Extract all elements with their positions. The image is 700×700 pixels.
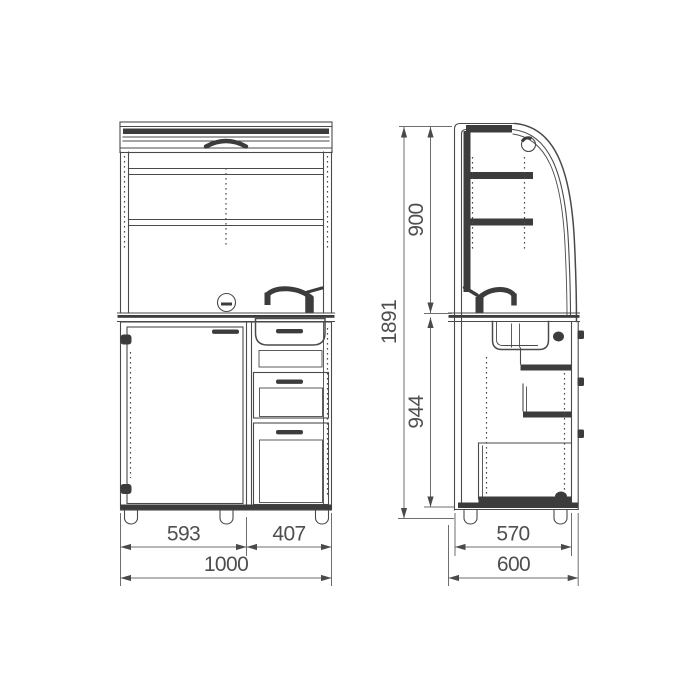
drawer-bottom-handle: [276, 430, 303, 434]
plinth-rail-side: [458, 503, 578, 509]
sink-drawer-inner-panel: [259, 351, 322, 368]
door-hinge-top: [121, 335, 132, 345]
drawer-bottom-front: [254, 423, 329, 505]
cabinet-door: [127, 327, 243, 504]
fitting-clip-top: [553, 332, 564, 342]
drawer-middle-handle: [276, 380, 303, 384]
dim-label-lower-height: 944: [405, 394, 428, 428]
dim-label-upper-height: 900: [405, 203, 428, 236]
hutch-shelves: [129, 168, 324, 247]
faucet-front: [268, 288, 323, 313]
dim-side-total-height: 1891: [378, 127, 407, 519]
dim-front-total-width: 1000: [121, 553, 332, 581]
shutter-track-strip: [464, 131, 471, 292]
dim-label-drawer-width: 407: [272, 523, 305, 546]
faucet-side: [465, 288, 515, 314]
counter-knob: [218, 294, 236, 312]
dim-label-total-height: 1891: [378, 300, 401, 344]
drawer-handle-profile: [578, 331, 585, 340]
shutter-slat-band: [123, 129, 329, 135]
door-hinge-bottom: [121, 484, 132, 494]
dim-label-total-width: 1000: [204, 553, 248, 576]
shelves-side: [468, 157, 534, 251]
sink-drawer-handle: [276, 329, 303, 333]
front-view: 593 407 1000: [118, 122, 335, 586]
sink-side: [493, 322, 549, 350]
dim-side-lower-height: 944: [405, 318, 434, 508]
dim-label-door-width: 593: [167, 523, 200, 546]
base-cabinet-front: [121, 319, 332, 511]
shutter-handle-icon: [206, 141, 246, 147]
shutter-top-bar: [466, 125, 512, 133]
foot: [464, 510, 477, 524]
countertop-side: [449, 313, 580, 322]
side-height-dimensions: 1891 900 944: [378, 127, 454, 519]
door-handle: [212, 330, 239, 334]
dim-side-body-depth: 570: [455, 523, 572, 551]
technical-drawing-canvas: 593 407 1000: [0, 0, 700, 700]
dim-front-drawer-width: 407: [247, 523, 332, 551]
countertop-front: [118, 313, 335, 322]
foot: [316, 511, 329, 525]
drawer-handle-profile: [578, 378, 585, 387]
dim-side-total-depth: 600: [449, 553, 579, 581]
drawer-middle-front: [254, 373, 329, 419]
foot: [125, 511, 138, 525]
cabinet-technical-drawing: 593 407 1000: [0, 0, 700, 700]
dim-label-total-depth: 600: [497, 553, 530, 576]
drawer-handle-profile: [578, 430, 585, 439]
foot: [554, 510, 567, 524]
drawer-sections-side: [479, 348, 572, 503]
plinth-rail-front: [121, 505, 332, 510]
shutter-housing: [120, 122, 332, 153]
dim-label-body-depth: 570: [496, 523, 529, 546]
dim-front-door-width: 593: [121, 523, 247, 551]
foot: [220, 511, 233, 525]
side-view: 1891 900 944: [378, 124, 584, 587]
dim-side-upper-height: 900: [405, 127, 434, 313]
fitting-clip-bottom: [555, 492, 567, 502]
